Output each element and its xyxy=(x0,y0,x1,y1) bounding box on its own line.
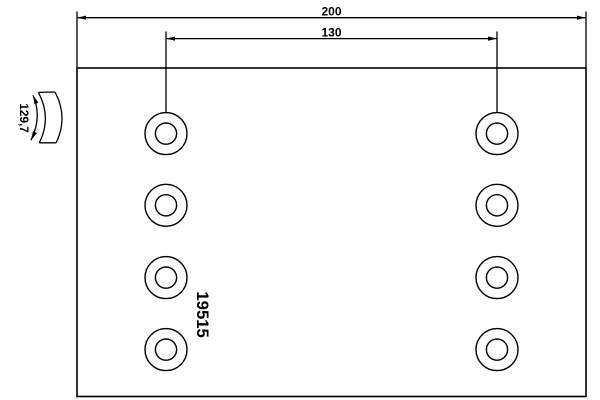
svg-text:19515: 19515 xyxy=(193,291,212,337)
svg-text:130: 130 xyxy=(321,25,341,39)
svg-text:129,7: 129,7 xyxy=(17,103,31,133)
svg-text:200: 200 xyxy=(321,5,341,19)
